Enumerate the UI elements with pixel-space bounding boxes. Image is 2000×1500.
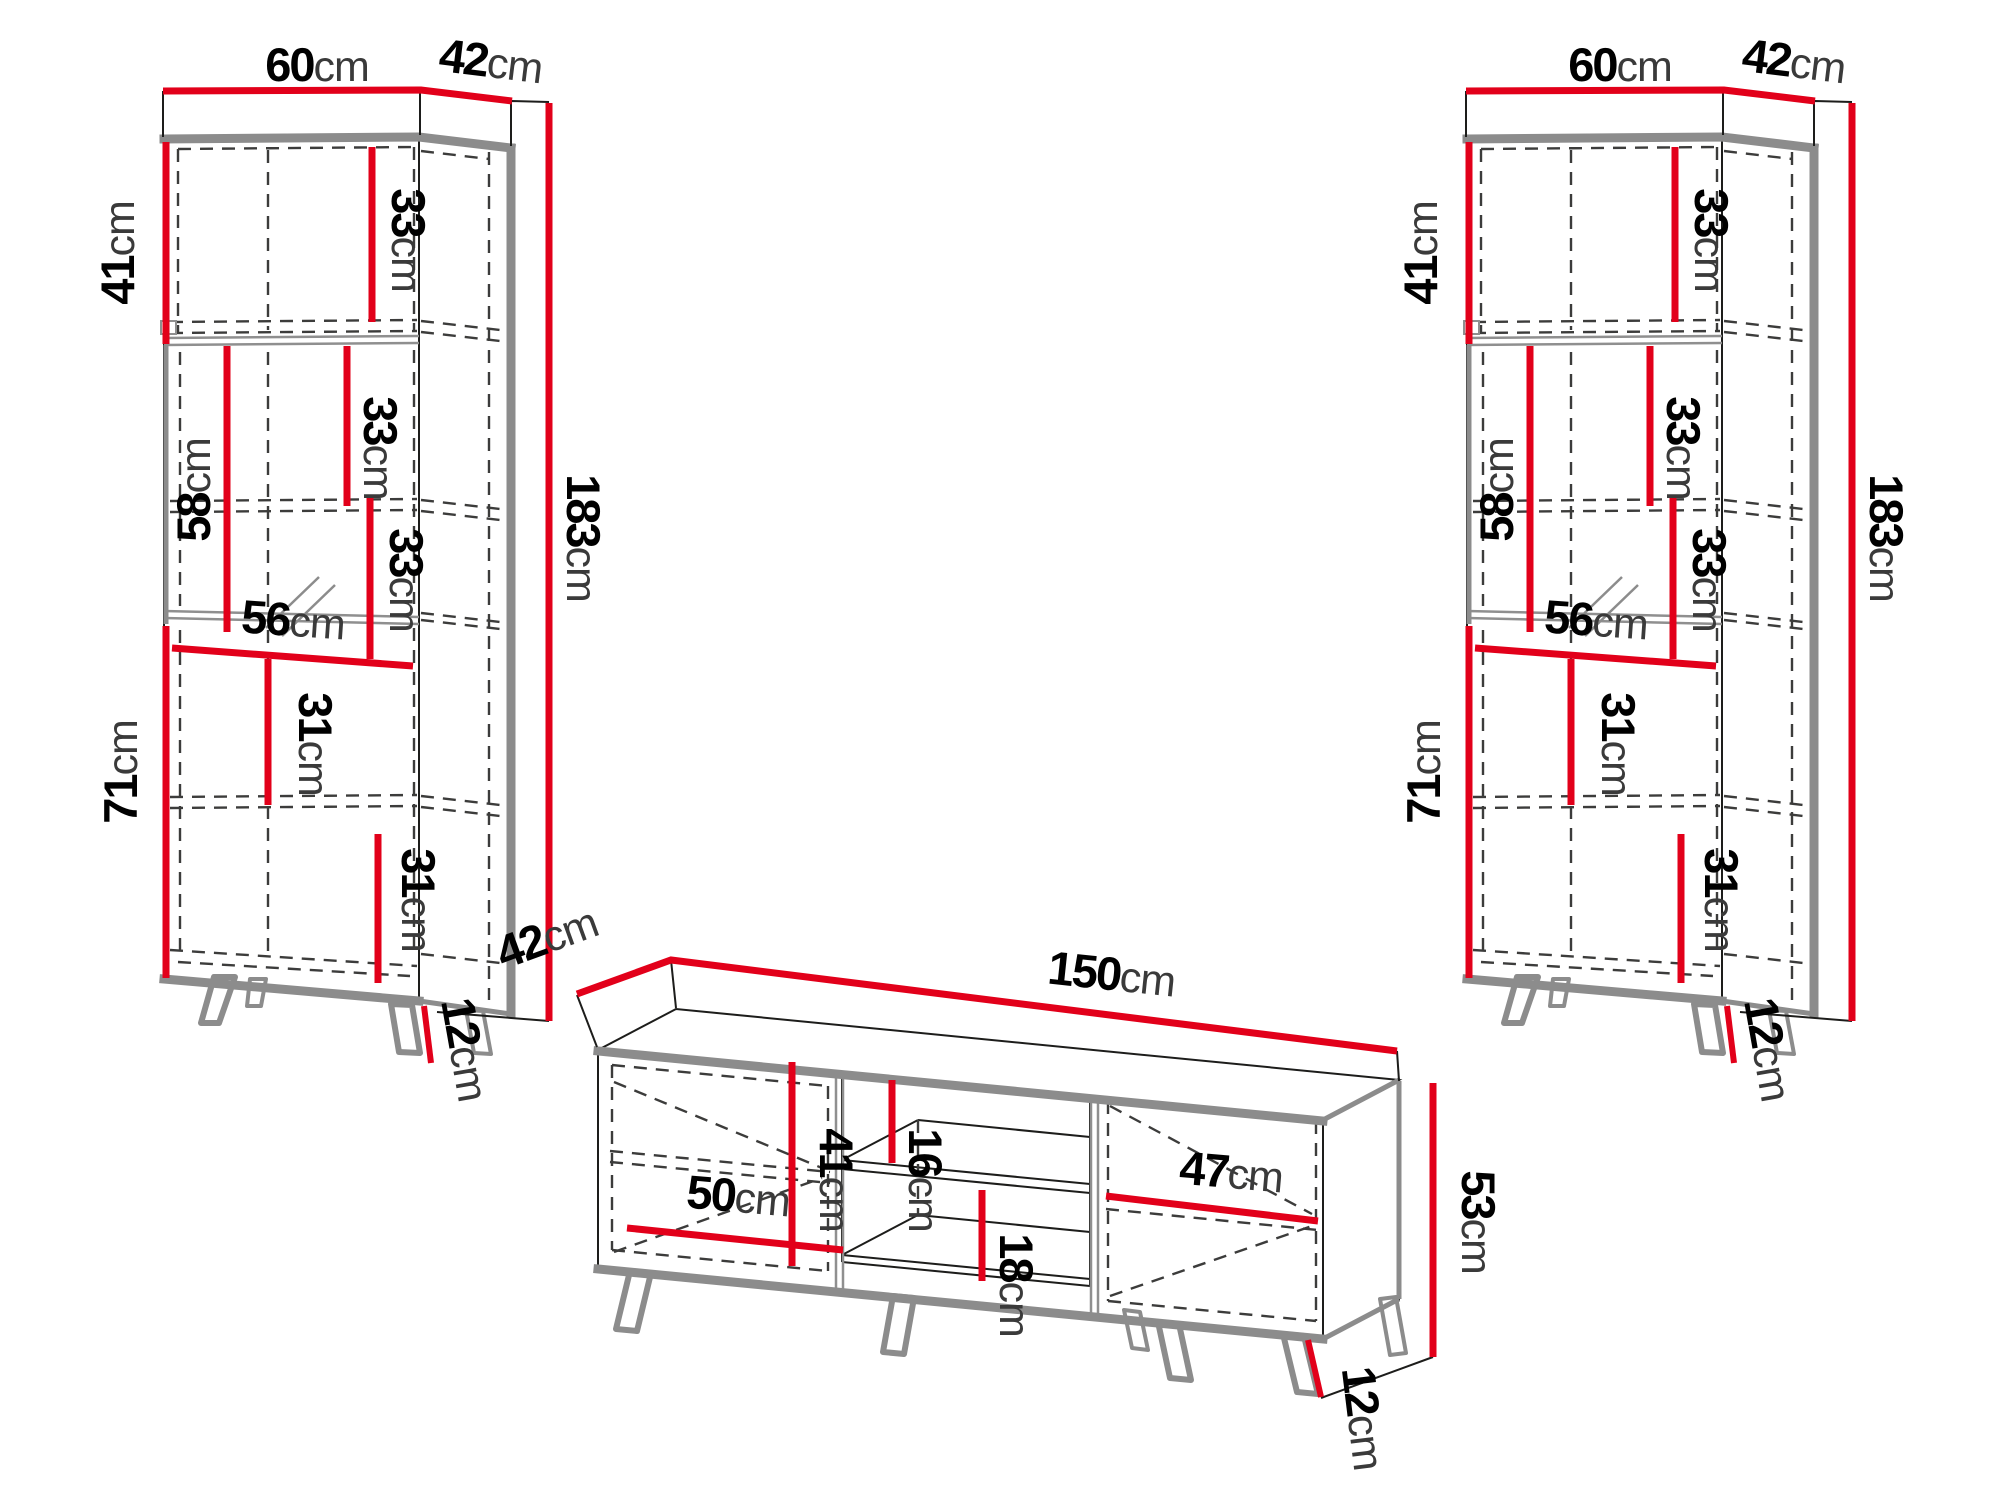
dim-right-top-width: 60cm [1568, 38, 1672, 91]
dim-tv-body-height: 53cm [1452, 1170, 1505, 1274]
cabinet-right-drawing [1464, 90, 1852, 1063]
dim-right-upper-door-height: 41cm [1394, 201, 1447, 305]
furniture-dimensions-diagram: 60cm 42cm 41cm 33cm 33cm 33cm 58cm 56cm … [0, 0, 2000, 1500]
dim-left-lower-middle-shelf: 33cm [380, 528, 433, 632]
dim-tv-leg-height: 12cm [1332, 1363, 1397, 1472]
dim-right-middle-shelf: 33cm [1657, 396, 1710, 500]
cabinet-right: 60cm 42cm 41cm 33cm 33cm 33cm 58cm 56cm … [1394, 28, 1913, 1105]
dim-left-top-width: 60cm [265, 38, 369, 91]
dim-left-glass-door-height: 58cm [167, 438, 220, 542]
dim-left-lower-shelf-1: 31cm [289, 692, 342, 796]
dim-left-lower-door-height: 71cm [94, 720, 147, 824]
dim-right-lower-door-height: 71cm [1397, 720, 1450, 824]
dim-right-total-height: 183cm [1860, 474, 1913, 602]
dim-left-top-depth: 42cm [436, 28, 545, 93]
dim-tv-width: 150cm [1045, 941, 1178, 1007]
dim-right-lower-shelf-1: 31cm [1592, 692, 1645, 796]
dim-right-lower-middle-shelf: 33cm [1683, 528, 1736, 632]
dim-tv-niche-upper: 16cm [899, 1128, 952, 1232]
dim-right-top-depth: 42cm [1739, 28, 1848, 93]
dim-left-lower-shelf-2: 31cm [392, 848, 445, 952]
dim-tv-niche-lower: 18cm [990, 1233, 1043, 1337]
dim-left-upper-shelf: 33cm [382, 188, 435, 292]
dim-right-glass-door-height: 58cm [1470, 438, 1523, 542]
dim-right-upper-shelf: 33cm [1685, 188, 1738, 292]
cabinet-left-drawing [161, 90, 549, 1063]
dim-left-middle-shelf: 33cm [354, 396, 407, 500]
dim-left-total-height: 183cm [557, 474, 610, 602]
diagram-canvas: 60cm 42cm 41cm 33cm 33cm 33cm 58cm 56cm … [0, 0, 2000, 1500]
dim-right-lower-shelf-2: 31cm [1695, 848, 1748, 952]
tv-stand: 42cm 150cm 41cm 50cm 16cm 18cm 47cm 53cm… [489, 894, 1505, 1473]
dim-left-upper-door-height: 41cm [91, 201, 144, 305]
dim-tv-door-height: 41cm [810, 1128, 863, 1232]
